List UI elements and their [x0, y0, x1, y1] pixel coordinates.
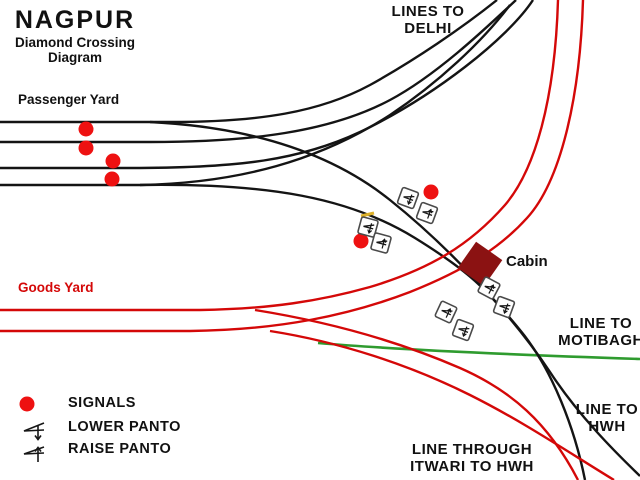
lower-panto-marker [452, 319, 474, 341]
title-main: NAGPUR [15, 6, 135, 35]
label-line-through-itwari: LINE THROUGH ITWARI TO HWH [410, 441, 534, 476]
legend-row-raise-panto: RAISE PANTO [18, 441, 171, 457]
signal-dot [106, 154, 121, 169]
signal-dot [79, 141, 94, 156]
title-sub-line2: Diagram [15, 50, 135, 66]
signal-dot [79, 122, 94, 137]
legend-label-signals: SIGNALS [68, 395, 136, 411]
legend-label-lower-panto: LOWER PANTO [68, 419, 181, 435]
raise-panto-marker [435, 301, 458, 324]
legend-row-lower-panto: LOWER PANTO [18, 419, 181, 435]
label-cabin: Cabin [506, 253, 548, 270]
label-line-to-motibagh: LINE TO MOTIBAGH [558, 315, 640, 350]
raise-panto-marker [371, 233, 392, 254]
label-goods-yard: Goods Yard [18, 280, 94, 296]
signal-dot [105, 172, 120, 187]
raise-panto-marker [416, 202, 438, 224]
page-title: NAGPUR Diamond Crossing Diagram [15, 6, 135, 66]
nagpur-diamond-crossing-diagram: NAGPUR Diamond Crossing Diagram Passenge… [0, 0, 640, 480]
cabin-building [458, 242, 503, 287]
lower-panto-marker [493, 296, 515, 318]
label-lines-to-delhi: LINES TO DELHI [392, 3, 465, 38]
title-sub-line1: Diamond Crossing [15, 35, 135, 51]
legend-row-signals: SIGNALS [18, 395, 136, 411]
label-line-to-hwh: LINE TO HWH [576, 401, 638, 436]
label-passenger-yard: Passenger Yard [18, 92, 119, 108]
signal-dot [424, 185, 439, 200]
legend-label-raise-panto: RAISE PANTO [68, 441, 171, 457]
lower-panto-marker [397, 187, 419, 209]
